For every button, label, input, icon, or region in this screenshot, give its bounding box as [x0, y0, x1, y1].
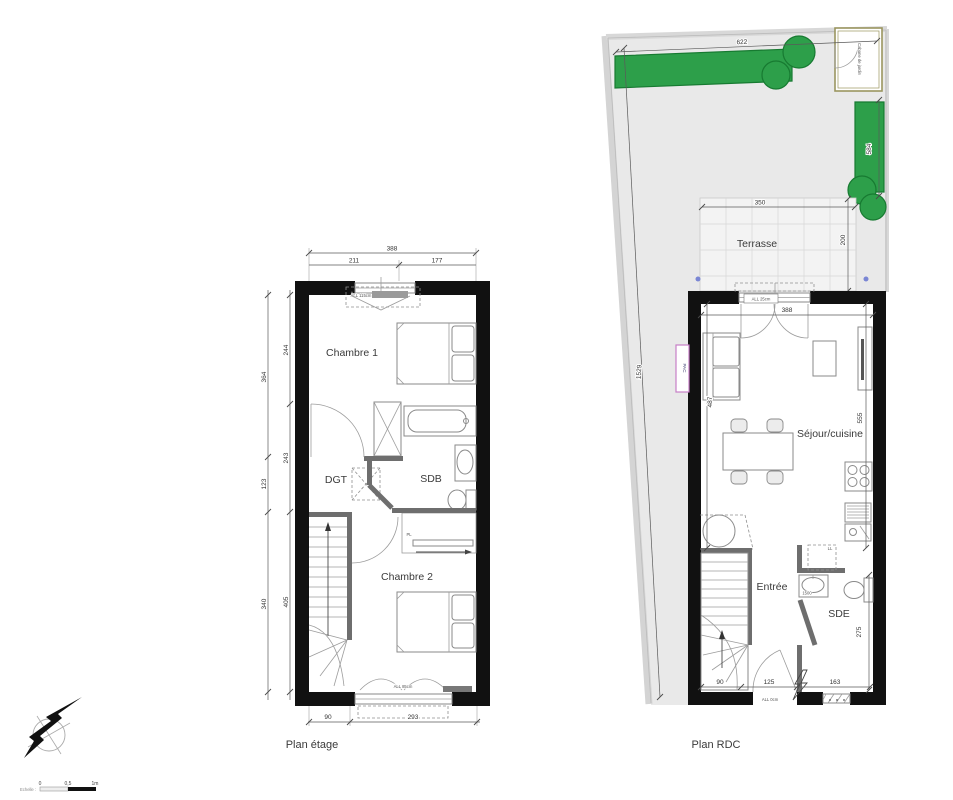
room-label-sdb: SDB	[420, 473, 442, 485]
heat-pump-label: PAC	[682, 363, 687, 373]
dim-etage-total: 388	[387, 246, 398, 253]
caption-plan-etage: Plan étage	[286, 739, 339, 751]
tree-icon	[762, 61, 790, 89]
sink-size-label: 1500	[802, 591, 812, 596]
floorplan-drawing: Cabane de jardin 622 584 1529	[0, 0, 953, 800]
dim-terrace-depth: 200	[840, 234, 847, 245]
bathtub-icon	[404, 406, 476, 436]
marker-dot	[696, 277, 701, 282]
garden-shed-label: Cabane de jardin	[857, 43, 862, 76]
scale-one: 1m	[92, 781, 99, 787]
dim-rdc-bottom-3: 163	[830, 679, 841, 686]
house-rdc: ALL 25cm 388 PAC	[676, 283, 886, 751]
scale-half: 0,5	[65, 781, 72, 787]
bay-window-label: ALL 25cm	[752, 297, 771, 302]
dim-bay: 388	[782, 307, 793, 314]
dim-inner-2: 243	[283, 452, 290, 463]
dim-etage-left: 211	[349, 258, 360, 265]
dim-rdc-bottom-1: 90	[716, 679, 724, 686]
radiator-icon	[443, 686, 472, 692]
dim-sde-height: 275	[856, 626, 863, 637]
room-label-terrasse: Terrasse	[737, 238, 777, 250]
room-label-sejour: Séjour/cuisine	[797, 428, 863, 440]
dim-etage-right: 177	[432, 258, 443, 265]
north-arrow-icon	[24, 697, 82, 758]
tree-icon	[783, 36, 815, 68]
tree-icon	[860, 194, 886, 220]
scale-bar: Echelle : 0 0,5 1m	[20, 781, 98, 792]
house-etage: ALL 115cm ALL 85cm	[261, 246, 490, 752]
dim-garden-right: 584	[866, 143, 873, 154]
washing-machine-label: LL	[828, 546, 833, 551]
toilet-icon	[448, 490, 476, 510]
dim-inner-3: 405	[283, 596, 290, 607]
marker-dot	[864, 277, 869, 282]
entry-door-label: ALL 0cm	[762, 697, 779, 702]
room-label-entree: Entrée	[757, 581, 788, 593]
duct-shaft-icon	[374, 402, 401, 456]
scale-zero: 0	[39, 781, 42, 787]
dim-outer-3: 340	[261, 598, 268, 609]
closet: PL	[402, 513, 476, 555]
dim-outer-2: 123	[261, 478, 268, 489]
room-label-sde: SDE	[828, 608, 850, 620]
heat-pump: PAC	[676, 345, 689, 392]
bed-icon	[397, 592, 476, 652]
floorplan-sheet: Cabane de jardin 622 584 1529	[0, 0, 953, 800]
staircase-etage	[309, 522, 347, 686]
dim-sejour-left: 487	[707, 396, 714, 407]
dim-garden-width: 622	[736, 39, 748, 46]
dim-garden-left: 1529	[636, 364, 644, 379]
caption-plan-rdc: Plan RDC	[692, 739, 741, 751]
window-bottom-label: ALL 85cm	[394, 684, 413, 689]
garden-shed: Cabane de jardin	[835, 28, 882, 91]
bathroom-sink-icon	[455, 445, 476, 481]
terrace: Terrasse 350 200	[696, 196, 869, 294]
dim-terrace-width: 350	[755, 200, 766, 207]
window-top: ALL 115cm	[346, 277, 420, 310]
room-label-chambre2: Chambre 2	[381, 571, 433, 583]
closet-label: PL	[406, 532, 412, 537]
scale-label: Echelle :	[20, 787, 36, 792]
bed-icon	[397, 323, 476, 384]
dim-etage-bottom-2: 293	[408, 714, 419, 721]
window-bottom: ALL 85cm	[355, 679, 452, 718]
dim-inner-1: 244	[283, 344, 290, 355]
dim-outer-1: 364	[261, 371, 268, 382]
dim-sejour-right: 555	[857, 412, 864, 423]
dim-rdc-bottom-2: 125	[764, 679, 775, 686]
room-label-chambre1: Chambre 1	[326, 347, 378, 359]
room-label-dgt: DGT	[325, 474, 348, 486]
dim-etage-bottom-1: 90	[324, 714, 332, 721]
